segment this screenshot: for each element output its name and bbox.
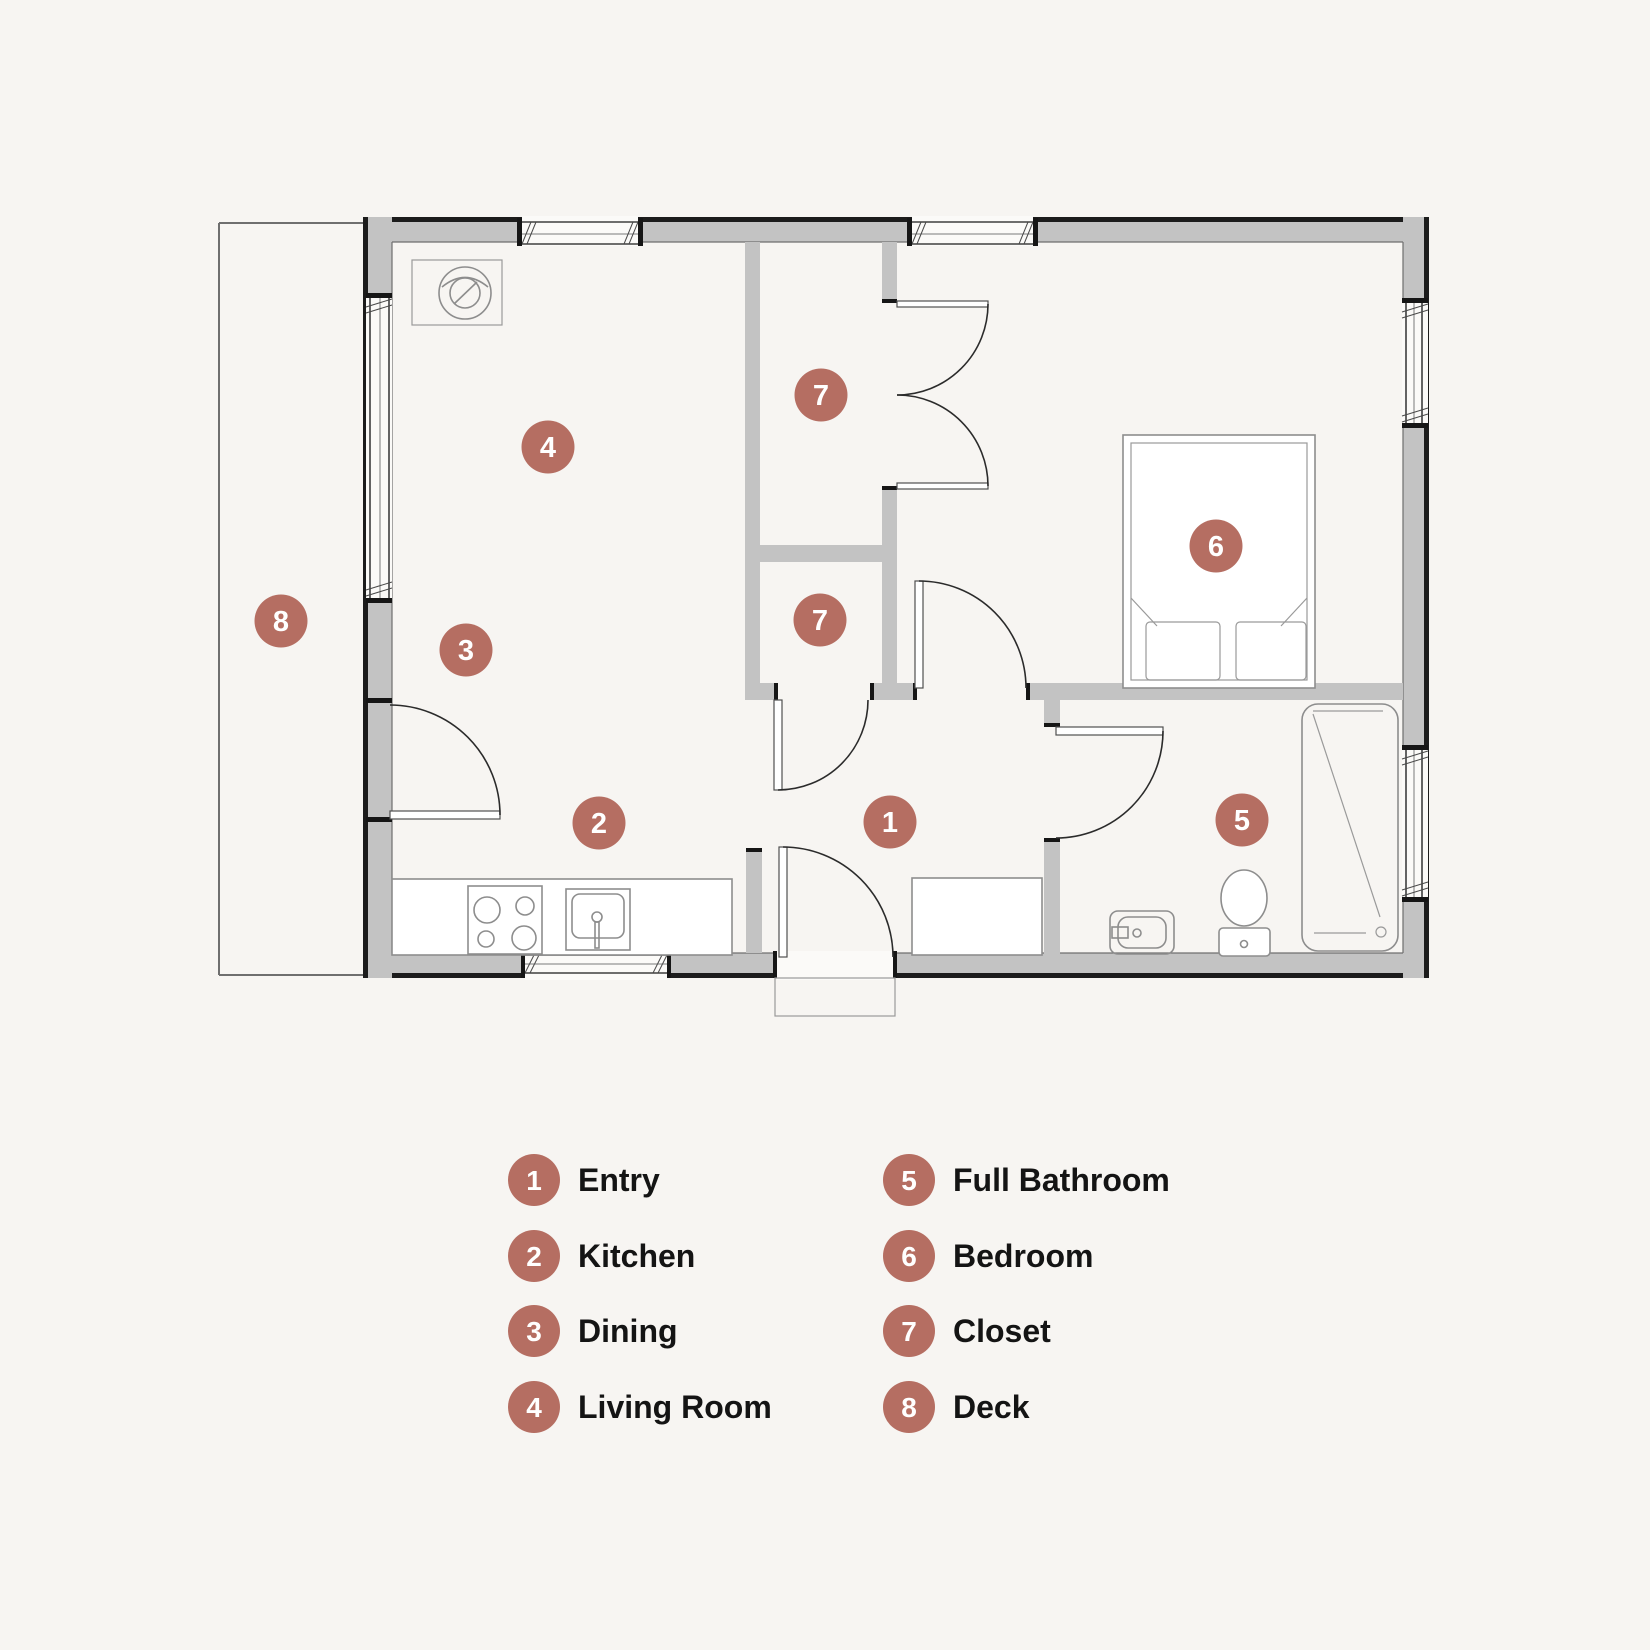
bedroom-door (915, 581, 1026, 688)
room-marker-dining: 3 (440, 624, 493, 677)
legend-label: Entry (578, 1162, 660, 1198)
floor-plan-drawing: 123456778 1Entry2Kitchen3Dining4Living R… (0, 0, 1650, 1650)
legend-label: Full Bathroom (953, 1162, 1170, 1198)
room-marker-living-room: 4 (522, 421, 575, 474)
room-marker-entry: 1 (864, 796, 917, 849)
room-markers: 123456778 (255, 369, 1269, 850)
marker-number: 6 (1208, 531, 1224, 563)
front-door (779, 847, 893, 957)
legend-number: 3 (526, 1316, 542, 1347)
appliance-symbol (412, 260, 502, 325)
bathroom-sink (1110, 911, 1174, 954)
legend-number: 7 (901, 1316, 917, 1347)
marker-number: 4 (540, 432, 556, 464)
marker-number: 2 (591, 808, 607, 840)
bathtub (1302, 704, 1398, 951)
legend-label: Bedroom (953, 1238, 1093, 1274)
marker-number: 1 (882, 807, 898, 839)
legend-label: Living Room (578, 1389, 772, 1425)
legend-number: 2 (526, 1241, 542, 1272)
entry-porch (775, 978, 895, 1016)
legend-label: Dining (578, 1313, 678, 1349)
room-marker-full-bathroom: 5 (1216, 794, 1269, 847)
legend-number: 4 (526, 1392, 542, 1423)
marker-number: 5 (1234, 805, 1250, 837)
bedroom-closet-double-doors (897, 301, 988, 489)
marker-number: 3 (458, 635, 474, 667)
legend-item-full-bathroom: 5Full Bathroom (883, 1154, 1170, 1206)
legend-number: 5 (901, 1165, 917, 1196)
room-marker-closet: 7 (794, 594, 847, 647)
kitchen-fixtures (392, 879, 732, 955)
room-marker-closet: 7 (795, 369, 848, 422)
legend-item-deck: 8Deck (883, 1381, 1030, 1433)
hall-closet-door (774, 700, 868, 790)
bedroom-side-window (1402, 298, 1428, 428)
bathroom-side-window (1402, 745, 1428, 902)
legend-label: Deck (953, 1389, 1030, 1425)
toilet (1219, 870, 1270, 956)
bathroom-door (1056, 727, 1163, 838)
legend-label: Closet (953, 1313, 1051, 1349)
kitchen-counter (392, 879, 732, 955)
floor-plan-page: 123456778 1Entry2Kitchen3Dining4Living R… (0, 0, 1650, 1650)
bedroom-top-window (907, 216, 1038, 246)
legend-item-bedroom: 6Bedroom (883, 1230, 1093, 1282)
legend-item-entry: 1Entry (508, 1154, 660, 1206)
living-room-top-window (517, 216, 643, 246)
living-room-side-window (366, 293, 392, 603)
room-marker-bedroom: 6 (1190, 520, 1243, 573)
legend-label: Kitchen (578, 1238, 695, 1274)
legend-number: 6 (901, 1241, 917, 1272)
entry-cabinet (912, 878, 1042, 955)
legend-number: 1 (526, 1165, 542, 1196)
legend-item-kitchen: 2Kitchen (508, 1230, 695, 1282)
deck-door (390, 705, 500, 819)
marker-number: 7 (813, 380, 829, 412)
legend-item-living-room: 4Living Room (508, 1381, 772, 1433)
room-marker-kitchen: 2 (573, 797, 626, 850)
room-marker-deck: 8 (255, 595, 308, 648)
legend-item-dining: 3Dining (508, 1305, 678, 1357)
marker-number: 7 (812, 605, 828, 637)
marker-number: 8 (273, 606, 289, 638)
legend-item-closet: 7Closet (883, 1305, 1051, 1357)
legend: 1Entry2Kitchen3Dining4Living Room5Full B… (508, 1154, 1170, 1433)
legend-number: 8 (901, 1392, 917, 1423)
